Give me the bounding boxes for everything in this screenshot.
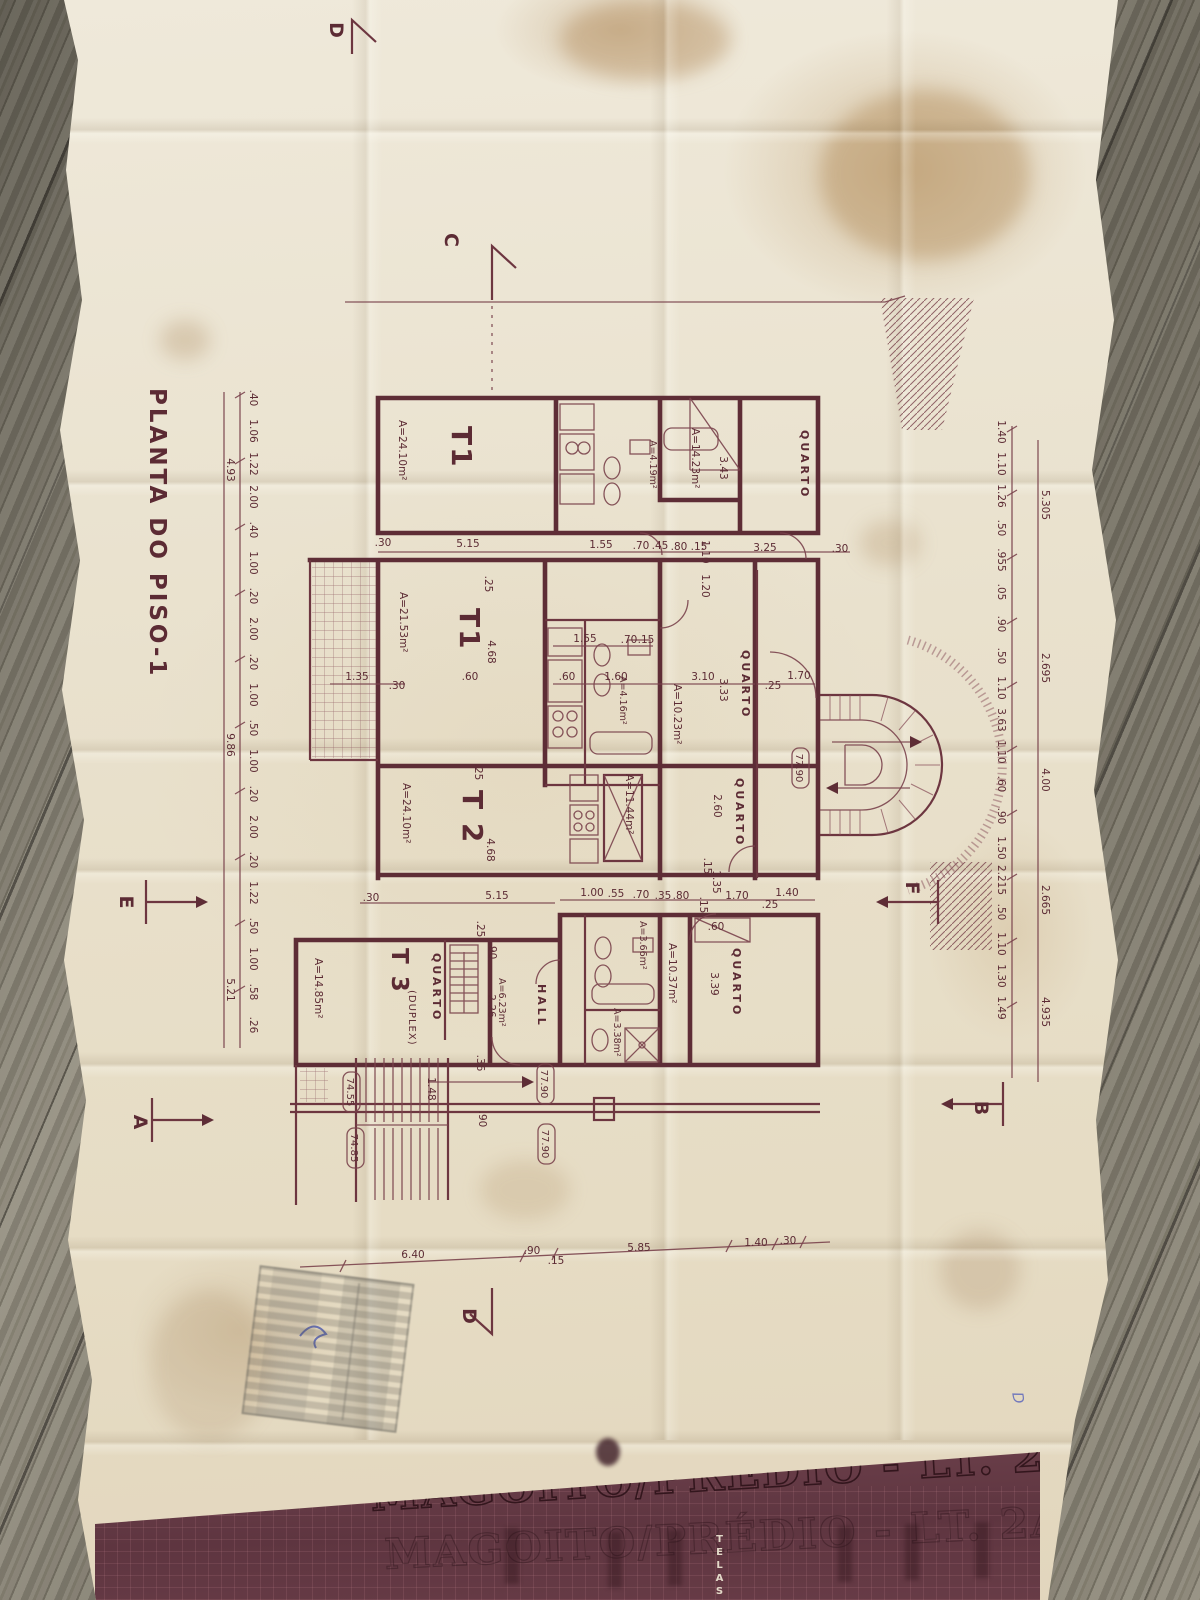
room-quarto: QUARTO [730, 948, 743, 1017]
dim-label: .90 [486, 943, 498, 960]
dim-label: .30 [832, 543, 849, 555]
dim-label: 1.50 [995, 836, 1007, 859]
section-letter-d-top: D [325, 22, 347, 38]
dim-label: .60 [995, 776, 1007, 793]
area-label: A=4.16m² [617, 676, 628, 725]
dim-label: 3.43 [717, 456, 729, 479]
dim-label: 2.00 [247, 485, 259, 508]
unit-label-t1-mid: T1 [453, 608, 486, 651]
dim-label: .90 [995, 808, 1007, 825]
area-label: A=10.23m² [671, 684, 683, 744]
dim-label: .20 [247, 852, 259, 869]
dim-label: 4.00 [1039, 768, 1051, 791]
approval-stamp [241, 1265, 414, 1433]
section-letter-b: B [970, 1101, 992, 1115]
fixtures-middle [548, 628, 652, 754]
dim-label: 1.00 [247, 551, 259, 574]
dim-label: .25 [472, 764, 484, 781]
dim-label: .40 [247, 390, 259, 407]
unit-area-t1-mid: A=21.53m² [397, 592, 409, 652]
right-dim-chain [1012, 426, 1038, 1082]
dim-label: 1.49 [995, 996, 1007, 1019]
dim-label: 1.10 [995, 932, 1007, 955]
dim-label: 2.26 [485, 994, 497, 1018]
dim-label: 1.70 [725, 890, 748, 902]
dim-label: 4.935 [1039, 997, 1051, 1027]
dim-label: 3.39 [708, 972, 720, 995]
dim-label: .50 [247, 918, 259, 935]
dim-label: 1.35 [345, 671, 368, 683]
unit-area-t1-top: A=24.10m² [396, 420, 408, 480]
dim-label: 2.00 [247, 815, 259, 838]
dim-label: .25 [474, 921, 486, 938]
dim-label: .15 [697, 897, 709, 914]
dim-label: .15 [548, 1255, 565, 1267]
retaining-wall-hatch [880, 298, 974, 430]
area-label: A=11.44m² [623, 774, 635, 834]
dim-label: .25 [482, 576, 494, 593]
dim-label: 5.15 [485, 890, 508, 902]
dim-label: .55 [608, 888, 625, 900]
dim-label: 1.40 [995, 420, 1007, 443]
dim-label: .26 [247, 1017, 259, 1034]
dim-label: .30 [363, 892, 380, 904]
dim-label: 1.22 [247, 881, 259, 904]
site-boundary-line [345, 296, 905, 302]
dim-label: 2.00 [247, 617, 259, 640]
dim-label: 5.21 [224, 978, 236, 1001]
section-letter-c: C [440, 233, 462, 247]
dim-label: .70 [633, 540, 650, 552]
unit-label-t3: T 3 [386, 948, 412, 994]
dim-label: 1.70 [787, 670, 810, 682]
ink-blob [596, 1438, 620, 1466]
dim-label: .70 [621, 634, 638, 646]
dim-label: 2.695 [1039, 653, 1051, 683]
section-letter-d-bottom: D [458, 1308, 480, 1324]
dim-label: .50 [995, 904, 1007, 921]
dim-label: 1.00 [247, 683, 259, 706]
plan-title: PLANTA DO PISO-1 [144, 388, 170, 678]
dim-label: .05 [995, 584, 1007, 601]
dim-label: 1.10 [995, 452, 1007, 475]
room-quarto: QUARTO [430, 953, 443, 1022]
unit-area-t3: A=14.85m² [312, 958, 324, 1018]
dim-label: .90 [995, 616, 1007, 633]
area-label: A=3.38m² [611, 1008, 622, 1057]
terrace-tiles [312, 562, 376, 758]
section-letter-e: E [115, 896, 137, 909]
dim-label: .25 [762, 899, 779, 911]
dim-label: 5.15 [456, 538, 479, 550]
dim-label: .45 [652, 540, 669, 552]
dim-label: 2.215 [995, 865, 1007, 895]
dim-label: 1.00 [247, 749, 259, 772]
dim-label: 1.26 [995, 484, 1007, 508]
level-label: 77.90 [538, 1070, 549, 1099]
room-quarto: QUARTO [739, 650, 752, 719]
fixtures-t2 [570, 775, 598, 863]
dim-label: 3.63 [995, 708, 1007, 731]
dim-label: .80 [673, 890, 690, 902]
dim-label: .90 [476, 1111, 488, 1128]
dim-label: .30 [375, 537, 392, 549]
area-label: A=14.23m² [689, 428, 701, 488]
dim-label: 1.22 [247, 452, 259, 475]
dim-label: 1.10 [995, 740, 1007, 763]
terrace-tiles [300, 1068, 328, 1102]
room-quarto: QUARTO [798, 430, 811, 499]
dim-label: 1.48 [425, 1077, 437, 1100]
dim-label: 1.00 [580, 887, 603, 899]
unit-suffix-t3: (DUPLEX) [406, 990, 417, 1046]
left-dim-chain [224, 392, 240, 1048]
blueprint-paper: PLANTA DO PISO-1 T1 A=24.10m² T1 A=21.53… [0, 0, 1200, 1600]
level-label: 77.90 [793, 754, 804, 783]
dim-label: 1.10 [995, 676, 1007, 699]
level-label: 74.85 [348, 1134, 359, 1163]
dim-label: .50 [995, 520, 1007, 537]
dim-label: 3.25 [753, 542, 776, 554]
dim-label: .30 [389, 680, 406, 692]
unit-area-t2: A=24.10m² [400, 783, 412, 843]
dim-label: 3.33 [717, 678, 729, 701]
section-letter-f: F [901, 882, 923, 895]
dim-label: .955 [995, 548, 1007, 571]
dim-label: .15 [638, 634, 655, 646]
dim-label: 2.60 [711, 794, 723, 817]
dim-label: .60 [559, 671, 576, 683]
dim-label: 1.55 [589, 539, 612, 551]
retaining-wall-hatch [930, 862, 992, 950]
dim-label: 5.305 [1039, 490, 1051, 520]
area-label: A=4.19m² [647, 440, 658, 489]
dim-label: 4.68 [485, 640, 497, 663]
dim-label: .36 [474, 1055, 486, 1072]
room-hall: HALL [535, 984, 548, 1028]
dim-label: .80 [671, 541, 688, 553]
dim-label: .35 [655, 890, 672, 902]
dim-label: .20 [247, 588, 259, 605]
dim-label: 1.35 [710, 870, 722, 893]
duplex-stair [450, 945, 478, 1013]
dim-label: .40 [247, 522, 259, 539]
level-label: 74.55 [344, 1078, 355, 1107]
dim-label: .50 [247, 720, 259, 737]
dim-label: 1.40 [775, 887, 798, 899]
curved-stair [820, 695, 942, 835]
dim-label: 5.85 [627, 1242, 650, 1254]
dim-label: 1.00 [247, 947, 259, 970]
dim-label: .60 [462, 671, 479, 683]
dim-label: 1.55 [573, 633, 596, 645]
dim-label: 1.40 [744, 1237, 767, 1249]
dim-label: .70 [633, 889, 650, 901]
dim-label: 2.665 [1039, 885, 1051, 915]
dim-label: .25 [765, 680, 782, 692]
dim-label: 1.06 [247, 419, 259, 443]
dim-label: .20 [247, 786, 259, 803]
dim-label: 9.86 [224, 733, 236, 757]
level-label: 77.90 [539, 1130, 550, 1159]
pen-mark: D [1008, 1391, 1028, 1406]
dim-label: 6.40 [401, 1249, 424, 1261]
dim-label: 4.93 [224, 458, 236, 481]
dim-label: .20 [247, 654, 259, 671]
section-letter-a: A [129, 1115, 151, 1130]
dim-label: .50 [995, 648, 1007, 665]
dim-label: 1.30 [995, 964, 1007, 987]
title-block-side-label: TELAS [714, 1534, 725, 1599]
floor-plan-svg: PLANTA DO PISO-1 T1 A=24.10m² T1 A=21.53… [0, 0, 1200, 1600]
room-quarto: QUARTO [733, 778, 746, 847]
dim-label: 1.60 [604, 671, 627, 683]
dim-label: .30 [780, 1235, 797, 1247]
dim-label: .58 [247, 984, 259, 1001]
dim-label: 1.20 [699, 574, 711, 597]
walkway-post [594, 1098, 614, 1120]
area-label: A=10.37m² [666, 943, 678, 1003]
unit-label-t1-top: T1 [445, 426, 478, 469]
photo-scene: PLANTA DO PISO-1 T1 A=24.10m² T1 A=21.53… [0, 0, 1200, 1600]
dim-label: 4.68 [484, 838, 496, 861]
dim-label: 3.10 [691, 671, 714, 683]
area-label: A=3.66m² [637, 921, 648, 970]
dim-label: 1.10 [699, 540, 711, 563]
dim-label: .90 [524, 1245, 541, 1257]
unit-label-t2: T 2 [456, 790, 489, 844]
dim-label: .60 [708, 921, 725, 933]
